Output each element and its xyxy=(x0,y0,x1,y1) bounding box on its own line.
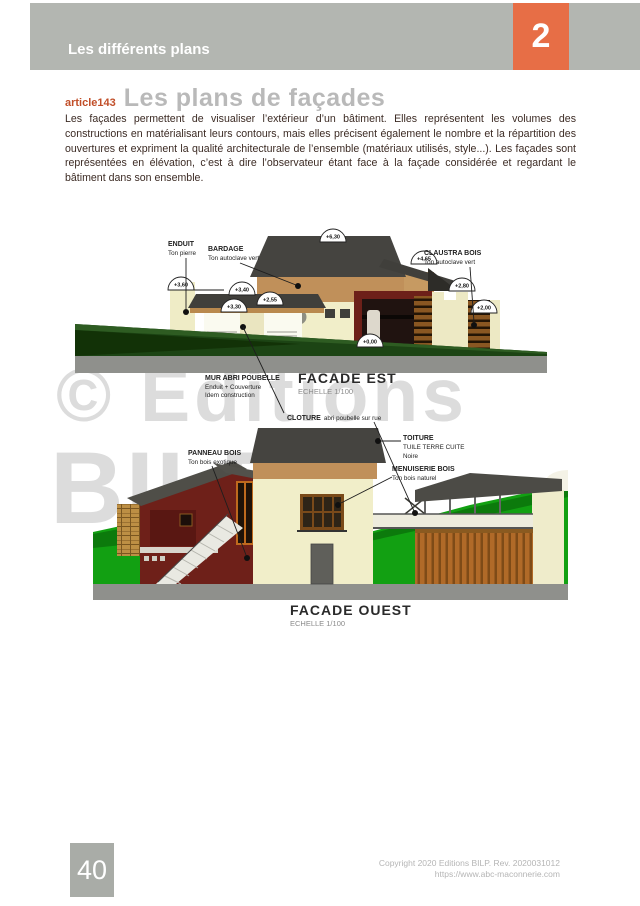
svg-text:+3,40: +3,40 xyxy=(235,288,249,294)
copyright-text: Copyright 2020 Editions BILP. Rev. 20200… xyxy=(379,858,560,880)
svg-text:+3,30: +3,30 xyxy=(227,305,241,311)
est-claustra-left xyxy=(414,296,434,352)
chapter-title: Les différents plans xyxy=(68,41,210,58)
svg-text:+2,80: +2,80 xyxy=(455,284,469,290)
elevation-marker: +3,60 xyxy=(168,277,224,290)
svg-text:+2,55: +2,55 xyxy=(263,298,277,304)
chapter-number-badge: 2 xyxy=(513,3,569,70)
svg-text:CLOTUREabri poubelle sur rue: CLOTUREabri poubelle sur rue xyxy=(287,415,382,422)
svg-text:ECHELLE 1/100: ECHELLE 1/100 xyxy=(298,387,353,396)
svg-text:Enduit + Couverture: Enduit + Couverture xyxy=(205,384,262,391)
est-abri-roof xyxy=(188,294,326,308)
svg-text:FACADE EST: FACADE EST xyxy=(298,370,397,386)
ouest-fence xyxy=(415,529,533,584)
ouest-right-pillar xyxy=(532,490,564,584)
facade-label-toiture: TOITURE TUILE TERRE CUITE Noire xyxy=(375,435,464,460)
est-crenellated-wall xyxy=(432,292,468,354)
svg-text:Idem construction: Idem construction xyxy=(205,392,255,399)
svg-text:PANNEAU BOIS: PANNEAU BOIS xyxy=(188,450,241,457)
svg-text:MENUISERIE BOIS: MENUISERIE BOIS xyxy=(392,466,455,473)
svg-text:Ton bois exotique: Ton bois exotique xyxy=(188,459,238,466)
article-heading: article143 Les plans de façades xyxy=(65,84,385,113)
elevation-marker: +3,40 xyxy=(229,282,255,295)
ouest-pallet xyxy=(117,504,143,556)
svg-text:+0,00: +0,00 xyxy=(363,340,377,346)
ouest-main-roof xyxy=(250,428,386,463)
svg-text:ECHELLE 1/100: ECHELLE 1/100 xyxy=(290,619,345,628)
copyright-line2: https://www.abc-maconnerie.com xyxy=(379,869,560,880)
facade-drawings: +6,30 +4,65 +3,60 +3,40 +3,30 +2,55 +2,8… xyxy=(0,195,640,640)
svg-text:Ton autoclave vert: Ton autoclave vert xyxy=(424,259,475,266)
ouest-base-strip xyxy=(93,584,568,600)
svg-text:BARDAGE: BARDAGE xyxy=(208,246,244,253)
svg-text:Ton pierre: Ton pierre xyxy=(168,250,196,257)
svg-text:MUR ABRI POUBELLE: MUR ABRI POUBELLE xyxy=(205,375,280,382)
page-number-badge: 40 xyxy=(70,843,114,897)
svg-text:FACADE OUEST: FACADE OUEST xyxy=(290,602,412,618)
svg-text:TUILE TERRE CUITE: TUILE TERRE CUITE xyxy=(403,444,464,451)
facade-est-title-block: FACADE EST ECHELLE 1/100 xyxy=(298,370,397,396)
facade-est-drawing: +6,30 +4,65 +3,60 +3,40 +3,30 +2,55 +2,8… xyxy=(75,229,547,413)
svg-text:ENDUIT: ENDUIT xyxy=(168,241,195,248)
page-title: Les plans de façades xyxy=(124,84,386,113)
ouest-rail-band xyxy=(373,514,533,528)
svg-text:+6,30: +6,30 xyxy=(326,235,340,241)
svg-text:TOITURE: TOITURE xyxy=(403,435,434,442)
ouest-door xyxy=(311,544,333,584)
page: { "header": { "chapter_title": "Les diff… xyxy=(0,0,640,906)
svg-text:Ton autoclave vert: Ton autoclave vert xyxy=(208,255,259,262)
svg-text:CLAUSTRA BOIS: CLAUSTRA BOIS xyxy=(424,250,482,257)
svg-text:+2,00: +2,00 xyxy=(477,306,491,312)
elevation-marker: +6,30 xyxy=(320,229,346,242)
copyright-line1: Copyright 2020 Editions BILP. Rev. 20200… xyxy=(379,858,560,869)
article-id: article143 xyxy=(65,97,116,109)
svg-text:Noire: Noire xyxy=(403,453,419,460)
facade-ouest-drawing: PANNEAU BOIS Ton bois exotique TOITURE T… xyxy=(93,428,568,628)
article-body-text: Les façades permettent de visualiser l’e… xyxy=(65,112,576,186)
facade-ouest-title-block: FACADE OUEST ECHELLE 1/100 xyxy=(290,602,412,628)
